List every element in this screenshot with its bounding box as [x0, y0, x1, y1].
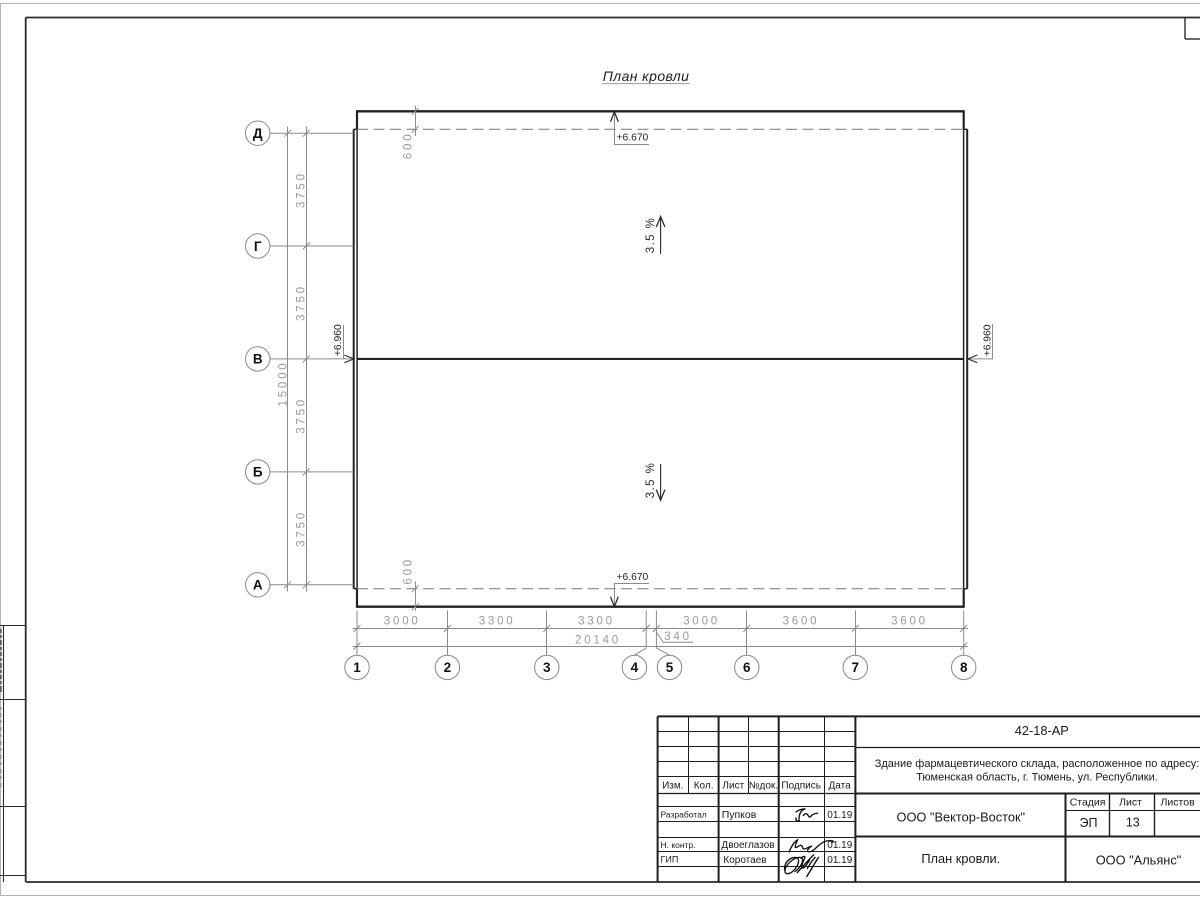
- svg-text:ЭП: ЭП: [1080, 816, 1098, 830]
- svg-text:8: 8: [960, 660, 968, 675]
- svg-text:+6.670: +6.670: [617, 572, 649, 583]
- svg-text:Тюменская область, г. Тюмень,: Тюменская область, г. Тюмень, ул. Респуб…: [916, 772, 1158, 784]
- svg-text:3000: 3000: [384, 616, 421, 628]
- svg-text:3750: 3750: [295, 284, 307, 321]
- svg-text:3600: 3600: [891, 616, 928, 628]
- svg-text:№док.: №док.: [749, 781, 778, 792]
- svg-text:7: 7: [852, 660, 860, 675]
- svg-text:01.19: 01.19: [827, 810, 852, 821]
- svg-text:Здание фармацевтического склад: Здание фармацевтического склада, располо…: [875, 758, 1200, 770]
- svg-text:3600: 3600: [783, 616, 820, 628]
- svg-text:1: 1: [353, 660, 361, 675]
- svg-text:+6.670: +6.670: [617, 133, 649, 144]
- svg-text:ООО "Альянс": ООО "Альянс": [1096, 852, 1182, 867]
- svg-text:Листов: Листов: [1161, 797, 1196, 809]
- svg-text:Б: Б: [253, 465, 263, 480]
- svg-text:Н. контр.: Н. контр.: [661, 840, 696, 850]
- svg-text:Изм.: Изм.: [662, 781, 683, 792]
- svg-text:План кровли: План кровли: [603, 68, 690, 84]
- svg-text:Лист: Лист: [722, 781, 744, 792]
- svg-text:Пупков: Пупков: [722, 809, 757, 821]
- svg-text:3.5 %: 3.5 %: [645, 217, 657, 253]
- svg-text:3: 3: [543, 660, 551, 675]
- svg-text:3.5 %: 3.5 %: [645, 462, 657, 498]
- svg-text:3750: 3750: [295, 397, 307, 434]
- svg-text:3300: 3300: [578, 616, 615, 628]
- svg-text:ГИП: ГИП: [661, 855, 679, 865]
- svg-text:6: 6: [743, 660, 751, 675]
- svg-text:+6.960: +6.960: [333, 324, 344, 356]
- svg-text:600: 600: [402, 132, 414, 160]
- svg-text:Двоеглазов: Двоеглазов: [721, 840, 774, 851]
- svg-text:3000: 3000: [683, 616, 720, 628]
- svg-text:Г: Г: [254, 239, 262, 254]
- svg-text:Стадия: Стадия: [1070, 797, 1106, 809]
- svg-text:13: 13: [1126, 816, 1140, 830]
- svg-text:Дата: Дата: [829, 781, 852, 792]
- svg-text:Разработал: Разработал: [661, 810, 707, 820]
- svg-text:3300: 3300: [479, 616, 516, 628]
- svg-text:В: В: [253, 352, 263, 367]
- svg-text:+6.960: +6.960: [982, 324, 993, 356]
- svg-text:01.19: 01.19: [827, 855, 852, 866]
- svg-text:2: 2: [444, 660, 452, 675]
- svg-text:Подпись: Подпись: [781, 781, 821, 792]
- svg-text:ООО "Вектор-Восток": ООО "Вектор-Восток": [897, 810, 1026, 825]
- svg-text:Д: Д: [253, 126, 263, 141]
- svg-text:3750: 3750: [295, 171, 307, 208]
- svg-text:42-18-АР: 42-18-АР: [1015, 723, 1069, 738]
- svg-text:Коротаев: Коротаев: [723, 855, 766, 866]
- svg-text:А: А: [253, 578, 263, 593]
- svg-text:3750: 3750: [295, 510, 307, 547]
- svg-text:Лист: Лист: [1119, 797, 1142, 809]
- svg-text:5: 5: [666, 660, 674, 675]
- svg-text:20140: 20140: [575, 634, 621, 646]
- svg-text:15000: 15000: [277, 361, 289, 407]
- svg-text:340: 340: [664, 631, 692, 643]
- svg-text:Кол.: Кол.: [694, 781, 714, 792]
- svg-text:4: 4: [631, 660, 639, 675]
- svg-text:600: 600: [402, 557, 414, 585]
- svg-text:План кровли.: План кровли.: [921, 851, 1000, 866]
